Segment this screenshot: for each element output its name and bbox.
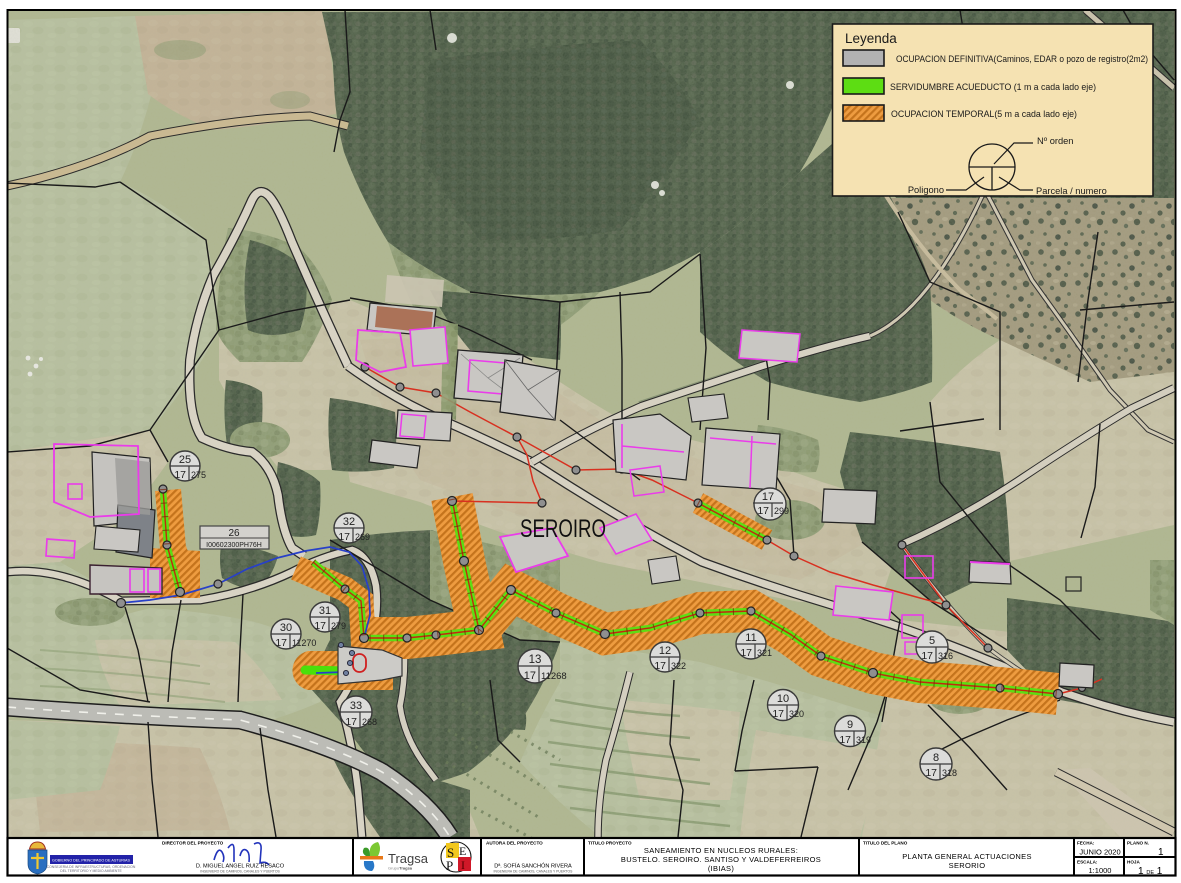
svg-text:17: 17 (275, 637, 287, 649)
svg-text:17: 17 (762, 491, 774, 503)
svg-text:17: 17 (345, 716, 357, 728)
svg-text:269: 269 (355, 532, 370, 542)
svg-text:SANEAMIENTO EN NUCLEOS RURALES: SANEAMIENTO EN NUCLEOS RURALES: (644, 846, 798, 855)
svg-text:10: 10 (777, 693, 789, 705)
svg-text:299: 299 (774, 506, 789, 516)
svg-text:11: 11 (745, 632, 756, 644)
svg-text:26: 26 (228, 528, 240, 539)
svg-text:17: 17 (338, 531, 350, 543)
svg-text:DEL TERRITORIO Y MEDIO AMBIENT: DEL TERRITORIO Y MEDIO AMBIENTE (60, 869, 122, 873)
svg-text:GOBIERNO DEL PRINCIPADO DE AST: GOBIERNO DEL PRINCIPADO DE ASTURIAS (52, 857, 130, 862)
svg-text:OCUPACION DEFINITIVA(Caminos,: OCUPACION DEFINITIVA(Caminos, EDAR o poz… (896, 54, 1148, 64)
svg-text:17: 17 (925, 767, 937, 779)
svg-text:268: 268 (362, 717, 377, 727)
svg-text:32: 32 (343, 516, 355, 528)
svg-text:17: 17 (740, 647, 752, 659)
svg-text:TITULO DEL PLANO: TITULO DEL PLANO (863, 841, 908, 846)
svg-text:ESCALA:: ESCALA: (1077, 860, 1098, 865)
svg-text:31: 31 (319, 605, 331, 617)
svg-text:Leyenda: Leyenda (845, 31, 897, 46)
svg-text:17: 17 (174, 469, 186, 481)
svg-text:17: 17 (524, 670, 536, 682)
svg-text:SERVIDUMBRE ACUEDUCTO (1 m a c: SERVIDUMBRE ACUEDUCTO (1 m a cada lado e… (890, 82, 1096, 92)
svg-text:HOJA: HOJA (1127, 860, 1140, 865)
svg-text:PLANTA GENERAL ACTUACIONES: PLANTA GENERAL ACTUACIONES (902, 852, 1032, 861)
svg-text:INGENIERO DE CAMINOS, CANALES: INGENIERO DE CAMINOS, CANALES Y PUERTOS (200, 870, 280, 874)
svg-text:17: 17 (654, 660, 666, 672)
svg-text:E: E (459, 844, 466, 858)
svg-text:OCUPACION TEMPORAL(5 m a cada: OCUPACION TEMPORAL(5 m a cada lado eje) (891, 109, 1077, 119)
svg-text:17: 17 (921, 650, 933, 662)
svg-text:9: 9 (847, 719, 853, 731)
svg-text:8: 8 (933, 752, 939, 764)
svg-text:275: 275 (191, 470, 206, 480)
svg-text:1:1000: 1:1000 (1089, 866, 1112, 875)
svg-text:BUSTELO. SEROIRO. SANTISO Y VA: BUSTELO. SEROIRO. SANTISO Y VALDEFERREIR… (621, 855, 821, 864)
svg-text:(IBIAS): (IBIAS) (708, 864, 734, 873)
svg-text:319: 319 (856, 735, 871, 745)
svg-text:TITULO PROYECTO: TITULO PROYECTO (588, 841, 632, 846)
svg-text:Poligono: Poligono (908, 185, 944, 195)
svg-text:25: 25 (179, 454, 191, 466)
svg-text:SERORIO: SERORIO (949, 861, 986, 870)
svg-text:P: P (446, 858, 453, 873)
svg-text:17: 17 (839, 734, 851, 746)
svg-text:JUNIO 2020: JUNIO 2020 (1079, 848, 1120, 857)
svg-text:320: 320 (789, 709, 804, 719)
svg-text:17: 17 (757, 505, 769, 517)
svg-text:17: 17 (314, 620, 326, 632)
svg-text:INGENIERA DE CAMINOS, CANALES: INGENIERA DE CAMINOS, CANALES Y PUERTOS (494, 870, 574, 874)
svg-text:I00602300PH76H: I00602300PH76H (206, 542, 262, 549)
svg-text:13: 13 (529, 654, 542, 666)
svg-text:FECHA:: FECHA: (1077, 841, 1095, 846)
svg-text:I: I (461, 858, 465, 872)
svg-text:DIRECTOR DEL PROYECTO: DIRECTOR DEL PROYECTO (162, 841, 224, 846)
svg-text:322: 322 (671, 661, 686, 671)
svg-text:11268: 11268 (541, 671, 567, 682)
svg-text:17: 17 (772, 708, 784, 720)
svg-text:Tragsa: Tragsa (388, 851, 429, 866)
svg-text:AUTORA DEL PROYECTO: AUTORA DEL PROYECTO (486, 841, 543, 846)
svg-text:316: 316 (938, 651, 953, 661)
svg-text:5: 5 (929, 635, 935, 647)
svg-text:GrupoTragsa: GrupoTragsa (388, 866, 413, 871)
svg-text:12: 12 (659, 645, 671, 657)
svg-text:33: 33 (350, 700, 362, 712)
svg-text:Nº orden: Nº orden (1037, 136, 1073, 146)
svg-text:SEROIRO: SEROIRO (520, 515, 606, 543)
svg-text:1: 1 (1158, 847, 1164, 858)
svg-text:PLANO N.: PLANO N. (1127, 841, 1149, 846)
svg-text:321: 321 (757, 648, 772, 658)
svg-text:279: 279 (331, 621, 346, 631)
svg-text:11270: 11270 (292, 638, 316, 648)
svg-text:Dª. SOFÍA SANCHÓN RIVERA: Dª. SOFÍA SANCHÓN RIVERA (494, 863, 572, 870)
svg-text:Parcela / numero: Parcela / numero (1036, 186, 1107, 196)
svg-text:318: 318 (942, 768, 957, 778)
svg-text:30: 30 (280, 622, 292, 634)
